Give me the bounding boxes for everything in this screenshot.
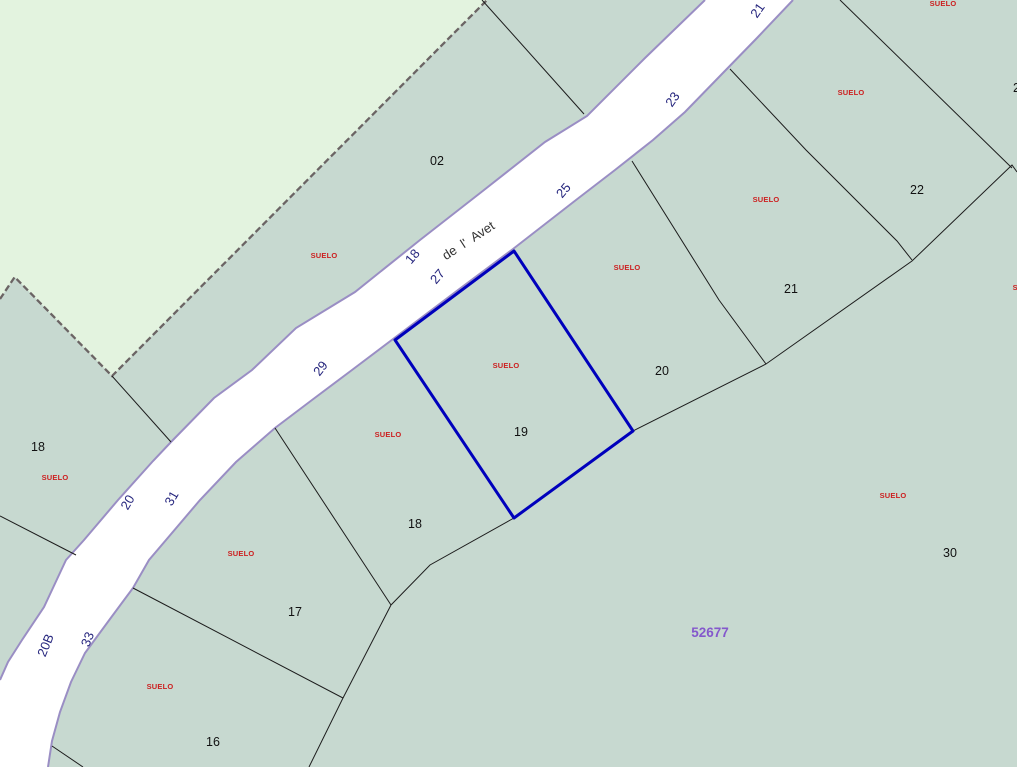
svg-text:17: 17	[288, 605, 302, 619]
svg-text:21: 21	[784, 282, 798, 296]
svg-text:19: 19	[514, 425, 528, 439]
svg-text:18: 18	[31, 440, 45, 454]
svg-text:SUELO: SUELO	[147, 682, 174, 691]
svg-text:22: 22	[910, 183, 924, 197]
svg-text:SUELO: SUELO	[838, 88, 865, 97]
svg-text:02: 02	[430, 154, 444, 168]
svg-text:23: 23	[1013, 81, 1017, 95]
svg-text:SUELO: SUELO	[375, 430, 402, 439]
svg-text:SUELO: SUELO	[42, 473, 69, 482]
svg-text:52677: 52677	[691, 625, 729, 640]
svg-text:SUELO: SUELO	[930, 0, 957, 8]
svg-text:16: 16	[206, 735, 220, 749]
svg-text:SUELO: SUELO	[493, 361, 520, 370]
svg-text:18: 18	[408, 517, 422, 531]
svg-text:SUELO: SUELO	[311, 251, 338, 260]
svg-text:SUELO: SUELO	[614, 263, 641, 272]
svg-text:SUELO: SUELO	[1013, 283, 1017, 292]
svg-text:20: 20	[655, 364, 669, 378]
svg-text:SUELO: SUELO	[753, 195, 780, 204]
svg-text:SUELO: SUELO	[880, 491, 907, 500]
svg-text:SUELO: SUELO	[228, 549, 255, 558]
svg-text:30: 30	[943, 546, 957, 560]
